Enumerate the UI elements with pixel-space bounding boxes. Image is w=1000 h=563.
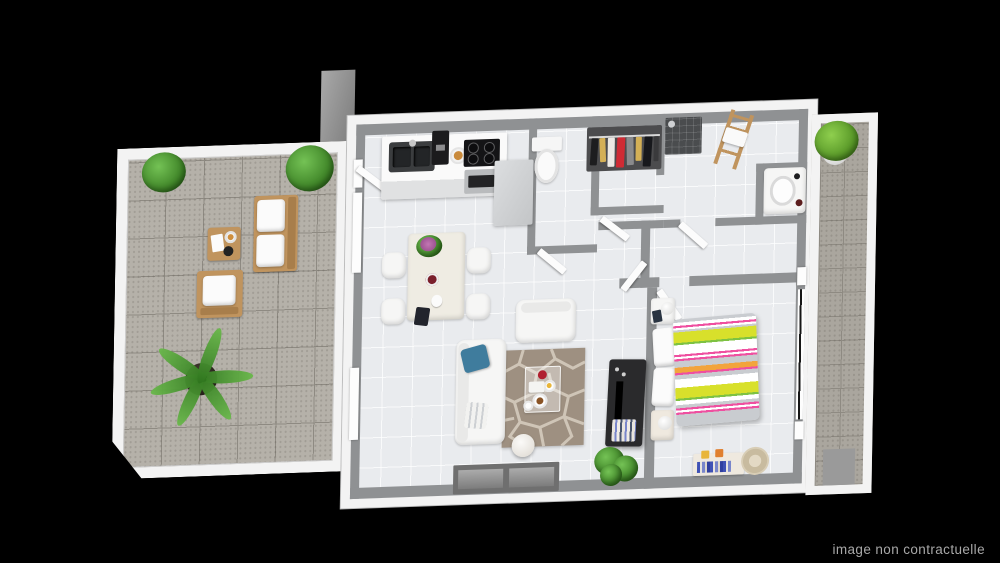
- outdoor-coffee-table: [207, 227, 241, 261]
- wall-bedroom-north-b: [689, 272, 805, 286]
- armchair-backrest: [200, 307, 238, 315]
- oven-window: [468, 175, 494, 188]
- egg: [547, 383, 552, 388]
- disclaimer-text: image non contractuelle: [832, 542, 985, 557]
- washbasin: [770, 175, 797, 206]
- wall-south: [350, 472, 802, 499]
- decor-knob: [615, 367, 619, 371]
- door-jamb: [797, 267, 806, 285]
- garment: [590, 138, 599, 165]
- garment: [653, 136, 658, 161]
- accessory: [795, 199, 802, 206]
- bowl: [223, 246, 233, 256]
- dining-chair: [382, 252, 406, 279]
- garment: [635, 137, 641, 161]
- french-door: [796, 289, 805, 419]
- washbasin-vanity: [763, 167, 806, 215]
- toy-cube: [715, 449, 723, 457]
- sofa-backrest: [287, 197, 296, 269]
- terrace-window-low: [349, 368, 359, 440]
- dressing-closet: [586, 125, 662, 172]
- garment: [626, 137, 633, 165]
- balcony-plant: [814, 120, 859, 162]
- tv-cabinet: [605, 359, 646, 446]
- book-stack: [611, 419, 636, 441]
- croissant: [228, 234, 234, 240]
- apartment-main: [341, 100, 818, 509]
- cherry-bowl: [426, 273, 439, 286]
- coffee-machine-tray: [436, 145, 445, 151]
- garment: [616, 137, 626, 167]
- potted-plant-icon: [142, 152, 187, 194]
- shower-room-door: [678, 221, 708, 249]
- dining-table: [407, 232, 465, 321]
- tray: [529, 381, 545, 393]
- bedside-lamp: [658, 416, 672, 431]
- nightstand: [651, 298, 675, 325]
- sink-basin: [414, 146, 430, 167]
- soap-bottle: [794, 173, 800, 179]
- dining-chair: [381, 298, 405, 325]
- window-pane: [509, 467, 554, 488]
- pitcher: [431, 295, 442, 307]
- sofa-cushion: [257, 199, 286, 232]
- bed-pillow: [651, 368, 676, 406]
- outdoor-sofa: [253, 195, 298, 273]
- palm-plant: [142, 320, 239, 423]
- garment: [607, 138, 615, 167]
- tablet: [414, 307, 431, 326]
- plate: [225, 231, 237, 243]
- nightstand: [651, 410, 675, 441]
- armchair-back: [521, 301, 571, 313]
- sofa-cushion: [256, 234, 285, 267]
- garment: [599, 138, 606, 162]
- shower: [665, 117, 703, 155]
- armchair-cushion: [202, 275, 236, 306]
- coffee-machine: [432, 130, 450, 165]
- terrace: [112, 141, 350, 479]
- toilet-bowl: [534, 149, 559, 184]
- striped-bed-duvet: [673, 313, 760, 427]
- balcony-step: [823, 448, 856, 485]
- sofa: [455, 339, 507, 446]
- pancakes: [536, 397, 543, 404]
- round-rug: [741, 446, 769, 475]
- shower-head: [668, 121, 675, 128]
- door-jamb: [794, 421, 803, 439]
- pastry: [454, 151, 463, 160]
- dining-chair: [466, 293, 490, 320]
- bedside-lamp: [661, 302, 674, 315]
- terrace-window: [352, 192, 362, 272]
- decor-knob: [622, 372, 626, 376]
- tall-cabinet: [494, 159, 534, 225]
- balcony: [805, 112, 878, 495]
- toy-cube: [701, 451, 709, 459]
- potted-plant-icon: [285, 144, 334, 192]
- outdoor-armchair: [196, 270, 243, 319]
- garment: [643, 136, 653, 166]
- armchair: [515, 298, 576, 343]
- wall-dressing-south: [591, 205, 664, 216]
- kitchen-sink: [389, 141, 435, 173]
- smartphone: [652, 309, 663, 323]
- apartment-plan: [0, 0, 1000, 563]
- side-table: [511, 434, 534, 458]
- book-row: [697, 461, 731, 473]
- bedroom-bench: [693, 452, 744, 476]
- dining-chair: [467, 247, 491, 274]
- sink-basin: [393, 147, 411, 168]
- striped-cushion: [464, 402, 489, 430]
- window-pane: [458, 469, 503, 490]
- floorplan-render: image non contractuelle: [0, 0, 1000, 563]
- magazine: [211, 234, 225, 253]
- bay-window: [453, 462, 559, 495]
